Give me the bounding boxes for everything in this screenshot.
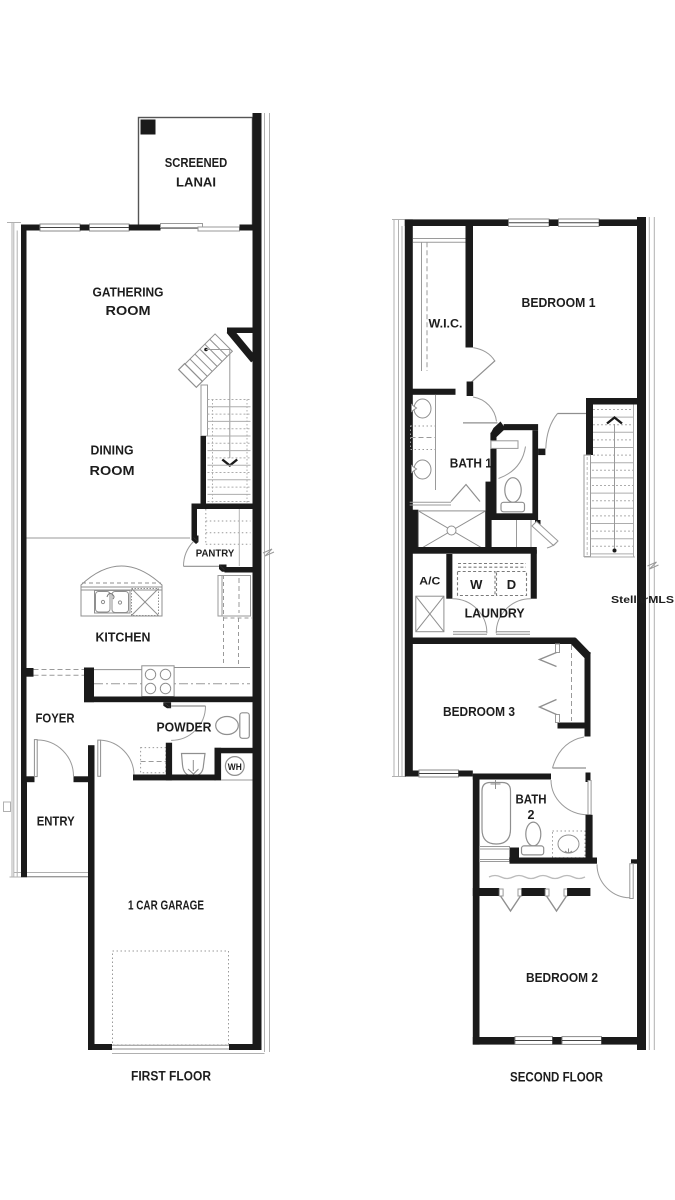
svg-text:LAUNDRY: LAUNDRY xyxy=(465,606,525,621)
svg-text:BEDROOM 2: BEDROOM 2 xyxy=(526,970,598,985)
svg-text:FIRST FLOOR: FIRST FLOOR xyxy=(131,1069,211,1084)
svg-text:GATHERING: GATHERING xyxy=(93,285,164,300)
svg-text:PANTRY: PANTRY xyxy=(196,548,235,560)
svg-text:W: W xyxy=(470,577,483,592)
svg-text:KITCHEN: KITCHEN xyxy=(96,630,151,645)
svg-text:LANAI: LANAI xyxy=(176,175,216,190)
svg-text:ROOM: ROOM xyxy=(106,303,151,318)
svg-text:ENTRY: ENTRY xyxy=(37,815,76,829)
svg-text:ROOM: ROOM xyxy=(90,463,135,478)
svg-text:DINING: DINING xyxy=(91,443,134,458)
svg-text:StellarMLS: StellarMLS xyxy=(611,594,674,606)
svg-text:1 CAR GARAGE: 1 CAR GARAGE xyxy=(128,899,204,913)
svg-text:W.I.C.: W.I.C. xyxy=(429,319,463,331)
svg-text:BATH 1: BATH 1 xyxy=(450,457,492,471)
svg-text:POWDER: POWDER xyxy=(157,721,212,735)
svg-text:FOYER: FOYER xyxy=(36,712,75,726)
svg-text:SCREENED: SCREENED xyxy=(165,155,228,170)
svg-text:SECOND FLOOR: SECOND FLOOR xyxy=(510,1070,603,1085)
svg-text:BEDROOM 3: BEDROOM 3 xyxy=(443,704,515,719)
svg-text:D: D xyxy=(507,577,516,592)
svg-text:BEDROOM 1: BEDROOM 1 xyxy=(522,295,596,310)
svg-text:BATH: BATH xyxy=(516,793,547,807)
svg-text:A/C: A/C xyxy=(419,576,440,588)
svg-text:2: 2 xyxy=(528,808,535,822)
svg-text:WH: WH xyxy=(228,762,242,772)
